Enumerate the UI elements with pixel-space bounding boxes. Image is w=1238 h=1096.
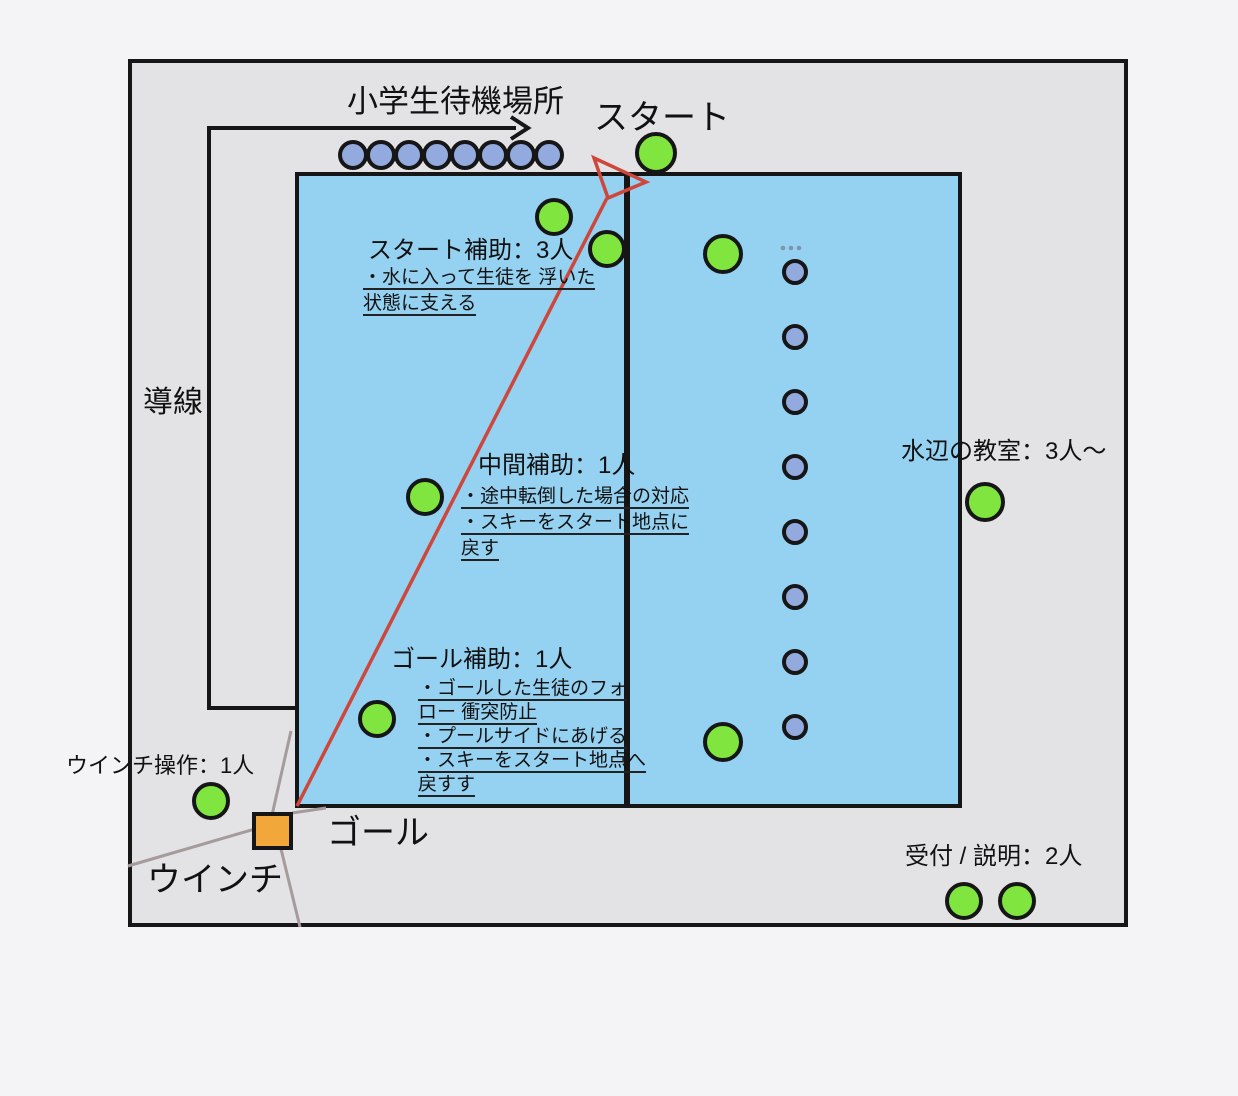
- goal-assist-notes: ・ゴールした生徒のフォ ロー 衝突防止 ・プールサイドにあげる ・スキーをスター…: [418, 679, 646, 799]
- queue-student: [782, 649, 808, 675]
- waiting-student: [338, 140, 368, 170]
- staff-winch-operator: [192, 782, 230, 820]
- waiting-area-label: 小学生待機場所: [347, 84, 564, 120]
- staff-right-lane-top: [703, 234, 743, 274]
- start-label: スタート: [594, 99, 730, 138]
- classroom-label: 水辺の教室：3人〜: [901, 438, 1106, 466]
- staff-classroom: [965, 482, 1005, 522]
- diagram-canvas: 小学生待機場所 スタート 導線 スタート補助：3人 ・水に入って生徒を 浮いた …: [0, 0, 1238, 1096]
- winch-label: ウインチ: [147, 861, 283, 900]
- middle-assist-title: 中間補助：1人: [478, 452, 635, 480]
- reception-label: 受付 / 説明：2人: [905, 843, 1082, 871]
- winch-box: [252, 812, 293, 850]
- queue-student: [782, 454, 808, 480]
- waiting-student: [394, 140, 424, 170]
- note-text: ・途中転倒した場合の対応: [461, 487, 689, 509]
- staff-reception-1: [945, 882, 983, 920]
- note-text: 状態に支える: [363, 294, 476, 316]
- winch-operator-label: ウインチ操作：1人: [66, 753, 254, 778]
- waiting-student: [422, 140, 452, 170]
- staff-start-assist-2: [588, 230, 626, 268]
- staff-middle-assist: [406, 478, 444, 516]
- queue-student: [782, 389, 808, 415]
- note-text: ・ゴールした生徒のフォ: [418, 679, 627, 701]
- note-text: 戻すす: [418, 775, 475, 797]
- start-assist-title: スタート補助：3人: [368, 237, 573, 265]
- middle-assist-notes: ・途中転倒した場合の対応 ・スキーをスタート地点に 戻す: [461, 487, 689, 565]
- note-text: ・スキーをスタート地点に: [461, 513, 689, 535]
- note-text: 戻す: [461, 539, 499, 561]
- note-text: ・プールサイドにあげる: [418, 727, 627, 749]
- queue-student: [782, 259, 808, 285]
- note-text: ・スキーをスタート地点へ: [418, 751, 646, 773]
- waiting-student: [450, 140, 480, 170]
- queue-student: [782, 324, 808, 350]
- start-assist-notes: ・水に入って生徒を 浮いた 状態に支える: [363, 268, 595, 320]
- queue-student: [782, 714, 808, 740]
- staff-right-lane-bottom: [703, 722, 743, 762]
- waiting-student: [534, 140, 564, 170]
- staff-start-assist-1: [535, 198, 573, 236]
- waiting-student: [506, 140, 536, 170]
- note-text: ・水に入って生徒を 浮いた: [363, 268, 595, 290]
- guide-line-label: 導線: [143, 386, 203, 421]
- goal-label: ゴール: [327, 814, 429, 853]
- goal-assist-title: ゴール補助：1人: [391, 646, 572, 674]
- waiting-student: [366, 140, 396, 170]
- staff-goal-assist: [358, 700, 396, 738]
- queue-student: [782, 519, 808, 545]
- waiting-student: [478, 140, 508, 170]
- queue-student: [782, 584, 808, 610]
- note-text: ロー 衝突防止: [418, 703, 537, 725]
- staff-reception-2: [998, 882, 1036, 920]
- staff-start: [635, 132, 677, 174]
